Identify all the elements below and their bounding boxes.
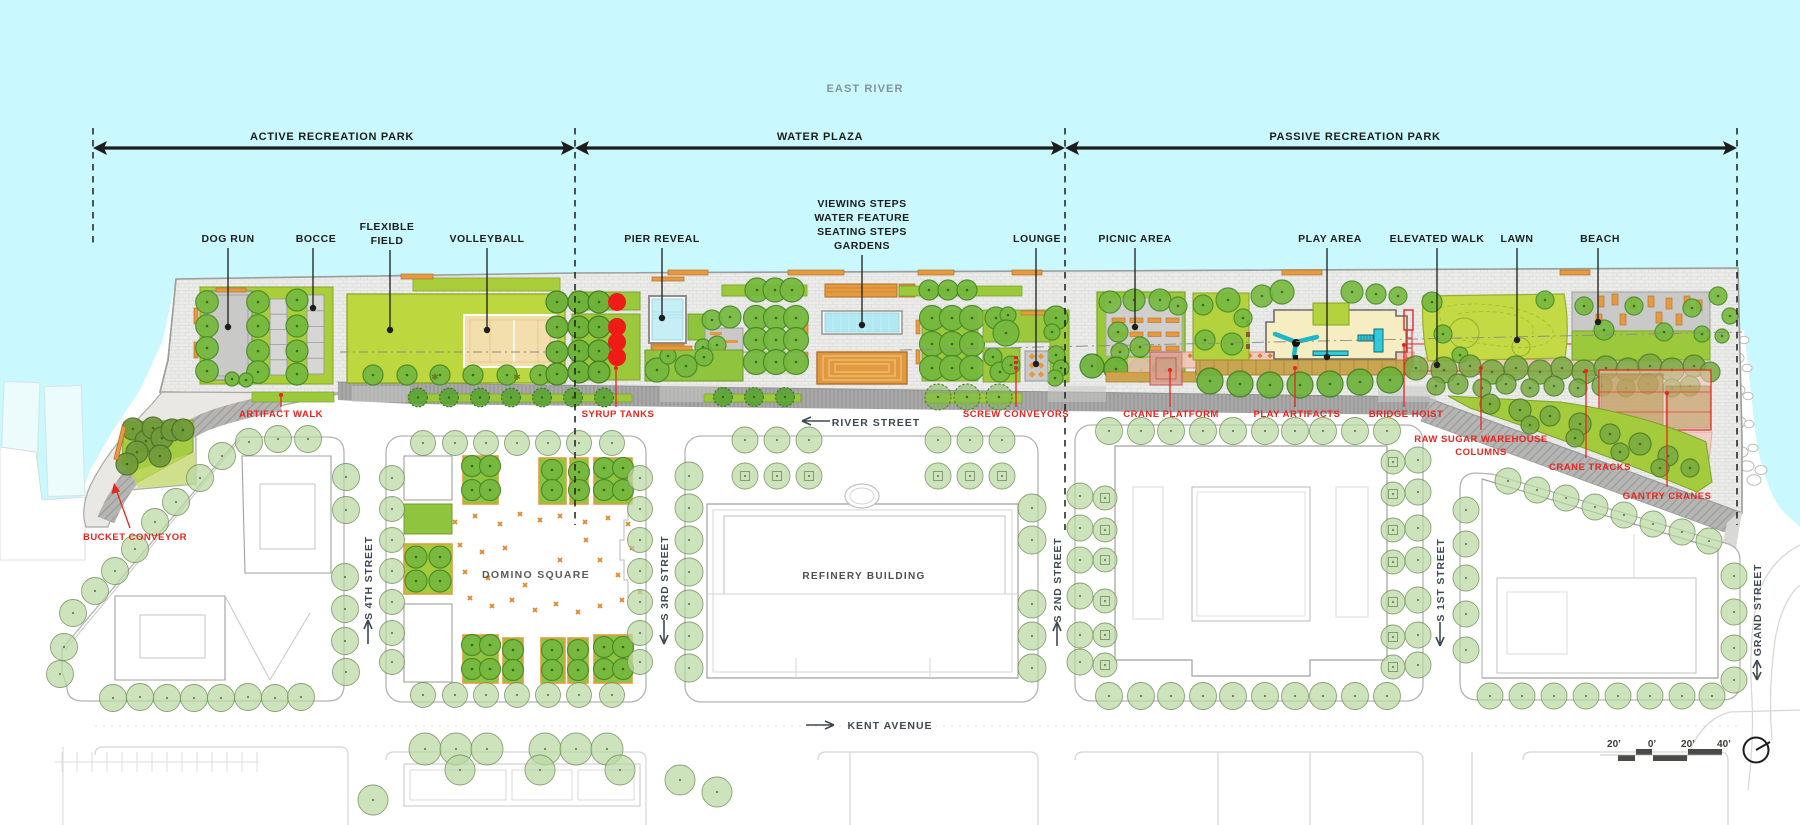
svg-text:S 2ND STREET: S 2ND STREET: [1052, 538, 1064, 623]
svg-text:FLEXIBLE: FLEXIBLE: [360, 221, 415, 233]
svg-text:0’: 0’: [1648, 739, 1657, 750]
svg-text:BRIDGE HOIST: BRIDGE HOIST: [1369, 409, 1444, 420]
svg-text:SYRUP TANKS: SYRUP TANKS: [582, 409, 655, 420]
svg-text:CRANE PLATFORM: CRANE PLATFORM: [1123, 409, 1218, 420]
svg-text:PASSIVE RECREATION PARK: PASSIVE RECREATION PARK: [1269, 131, 1440, 143]
svg-text:CRANE TRACKS: CRANE TRACKS: [1549, 462, 1631, 473]
svg-text:ELEVATED WALK: ELEVATED WALK: [1390, 233, 1485, 245]
svg-text:RIVER STREET: RIVER STREET: [832, 417, 920, 429]
svg-text:SCREW CONVEYORS: SCREW CONVEYORS: [963, 409, 1069, 420]
svg-text:KENT AVENUE: KENT AVENUE: [847, 720, 932, 732]
svg-text:LOUNGE: LOUNGE: [1013, 233, 1061, 245]
svg-text:EAST RIVER: EAST RIVER: [826, 83, 903, 95]
svg-text:ARTIFACT WALK: ARTIFACT WALK: [239, 409, 323, 420]
svg-text:DOMINO SQUARE: DOMINO SQUARE: [482, 569, 590, 581]
svg-text:DOG RUN: DOG RUN: [201, 233, 254, 245]
svg-text:LAWN: LAWN: [1501, 233, 1534, 245]
svg-text:REFINERY BUILDING: REFINERY BUILDING: [802, 571, 925, 582]
svg-text:ACTIVE RECREATION PARK: ACTIVE RECREATION PARK: [250, 131, 414, 143]
svg-text:WATER PLAZA: WATER PLAZA: [777, 131, 863, 143]
svg-text:COLUMNS: COLUMNS: [1455, 447, 1507, 458]
svg-text:S 4TH STREET: S 4TH STREET: [363, 536, 375, 620]
svg-text:BUCKET CONVEYOR: BUCKET CONVEYOR: [83, 532, 187, 543]
svg-text:WATER FEATURE: WATER FEATURE: [814, 212, 909, 224]
svg-text:VOLLEYBALL: VOLLEYBALL: [450, 233, 525, 245]
svg-text:S 3RD STREET: S 3RD STREET: [659, 536, 671, 621]
svg-text:PICNIC AREA: PICNIC AREA: [1098, 233, 1171, 245]
svg-text:S 1ST STREET: S 1ST STREET: [1435, 538, 1447, 621]
svg-text:20’: 20’: [1607, 739, 1621, 750]
svg-text:PLAY AREA: PLAY AREA: [1298, 233, 1362, 245]
svg-text:✱: ✱: [431, 372, 439, 382]
svg-text:SEATING STEPS: SEATING STEPS: [817, 226, 907, 238]
svg-text:20’: 20’: [1681, 739, 1695, 750]
svg-text:GARDENS: GARDENS: [834, 240, 890, 252]
svg-text:BEACH: BEACH: [1580, 233, 1620, 245]
svg-text:40’: 40’: [1717, 739, 1731, 750]
svg-text:GRAND STREET: GRAND STREET: [1752, 564, 1764, 656]
svg-text:BOCCE: BOCCE: [296, 233, 336, 245]
svg-text:GANTRY CRANES: GANTRY CRANES: [1623, 491, 1712, 502]
svg-text:✱: ✱: [513, 372, 521, 382]
svg-text:PLAY ARTIFACTS: PLAY ARTIFACTS: [1254, 409, 1341, 420]
svg-text:VIEWING STEPS: VIEWING STEPS: [817, 198, 906, 210]
svg-text:FIELD: FIELD: [371, 235, 404, 247]
svg-text:RAW SUGAR WAREHOUSE: RAW SUGAR WAREHOUSE: [1414, 434, 1548, 445]
svg-text:PIER REVEAL: PIER REVEAL: [624, 233, 700, 245]
